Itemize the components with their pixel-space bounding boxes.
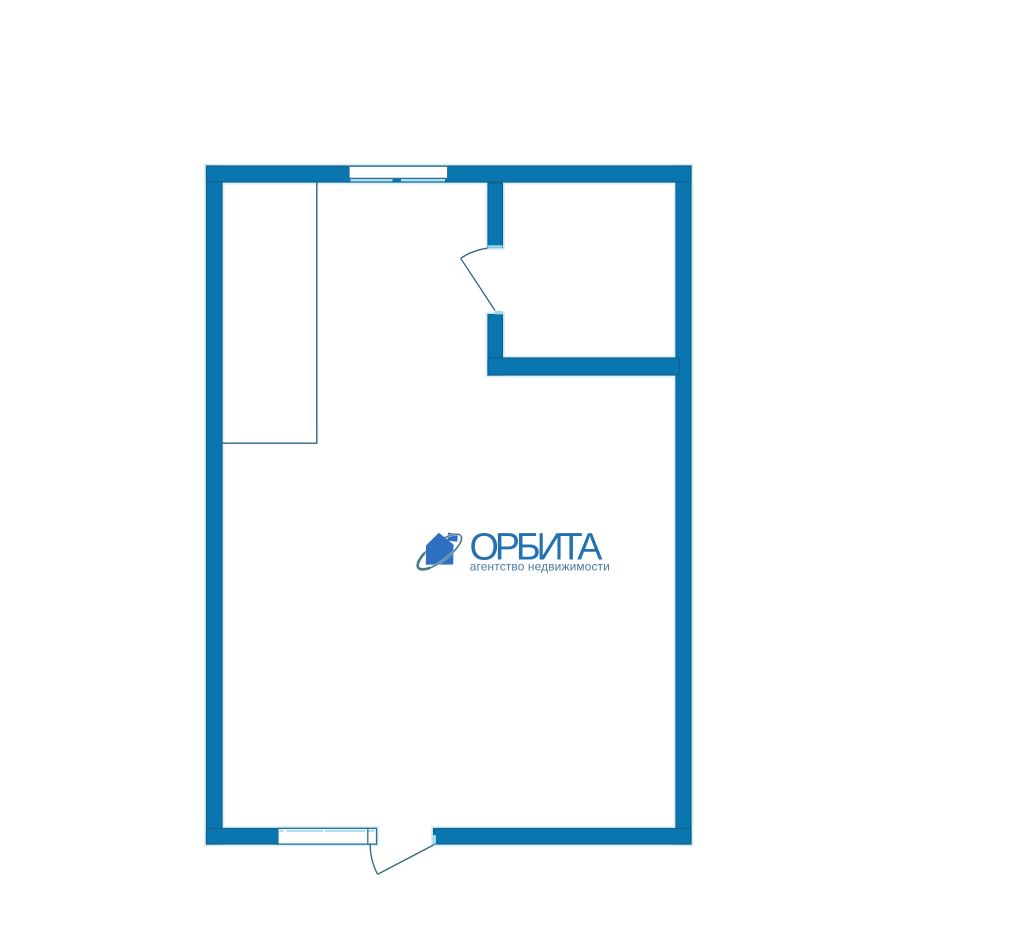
svg-text:агентство недвижимости: агентство недвижимости: [470, 560, 610, 574]
